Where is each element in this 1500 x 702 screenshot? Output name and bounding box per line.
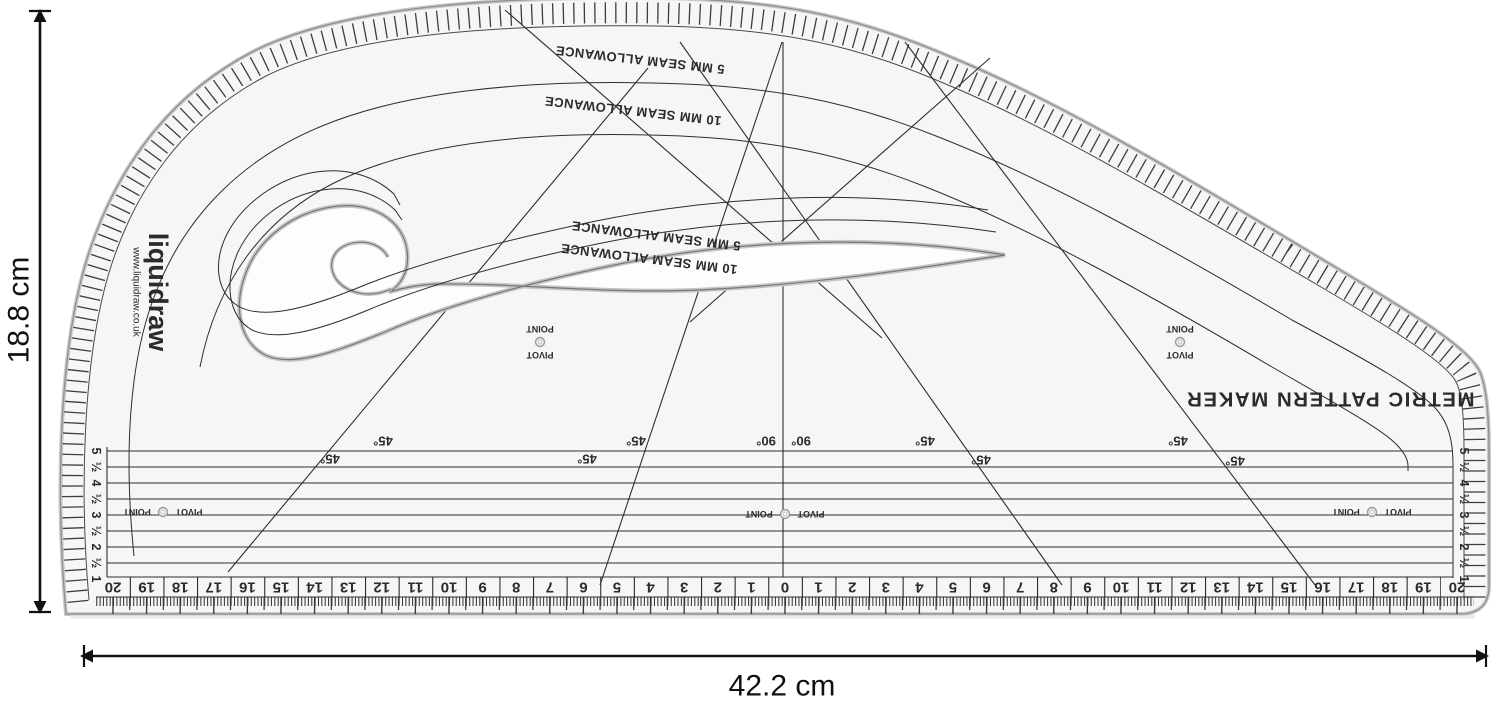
width-dimension [80, 645, 1489, 667]
side-scale-label-left: ½ [89, 462, 103, 472]
ruler-illustration: 18.8 cm 42.2 cm [0, 0, 1500, 702]
bottom-scale-number: 19 [1415, 579, 1432, 596]
angle-label-45: 45° [1225, 454, 1245, 469]
side-scale-label-right: 4 [1457, 480, 1471, 487]
bottom-scale-number: 20 [105, 579, 122, 596]
side-scale-label-right: ½ [1457, 462, 1471, 472]
bottom-scale-number: 16 [1314, 579, 1331, 596]
side-scale-label-right: ½ [1457, 494, 1471, 504]
pivot-hole-center [1178, 340, 1182, 344]
side-scale-label-left: 2 [89, 544, 103, 551]
pivot-hole-center [161, 510, 165, 514]
bottom-scale-number: 14 [306, 579, 323, 596]
pivot-point-label: POINT [526, 324, 554, 334]
bottom-scale-number: 9 [1083, 579, 1091, 596]
side-scale-label-left: ½ [89, 494, 103, 504]
bottom-scale-number: 13 [1213, 579, 1230, 596]
side-scale-label-left: ½ [89, 558, 103, 568]
angle-label-45: 45° [971, 453, 991, 468]
side-scale-label-right: ½ [1457, 558, 1471, 568]
width-dimension-label: 42.2 cm [729, 670, 836, 702]
bottom-scale-number: 3 [882, 579, 890, 596]
angle-label-45: 45° [1168, 434, 1188, 449]
pivot-label: PIVOT [797, 509, 825, 519]
bottom-scale-number: 7 [1016, 579, 1024, 596]
bottom-scale-number: 15 [273, 579, 290, 596]
bottom-scale-number: 10 [1113, 579, 1130, 596]
bottom-scale-number: 8 [1050, 579, 1058, 596]
pivot-label: PIVOT [1384, 507, 1412, 517]
bottom-scale-number: 12 [373, 579, 390, 596]
side-scale-label-right: 3 [1457, 512, 1471, 519]
side-scale-label-right: 5 [1457, 448, 1471, 455]
angle-label-45: 45° [915, 434, 935, 449]
side-scale-label-right: ½ [1457, 526, 1471, 536]
drop-shadow [70, 615, 1475, 619]
bottom-scale-number: 1 [747, 579, 755, 596]
pivot-label: PIVOT [1166, 350, 1194, 360]
height-dimension-label: 18.8 cm [3, 257, 36, 364]
bottom-scale-number: 6 [579, 579, 587, 596]
bottom-scale-number: 16 [239, 579, 256, 596]
angle-label-90: 90° [756, 434, 776, 449]
bottom-scale-number: 11 [1147, 579, 1163, 596]
pivot-point-label: POINT [1166, 324, 1194, 334]
side-scale-label-left: 3 [89, 512, 103, 519]
pivot-hole-center [1370, 510, 1374, 514]
angle-label-45: 45° [577, 452, 597, 467]
bottom-scale-number: 13 [340, 579, 357, 596]
side-scale-label-left: 4 [89, 480, 103, 487]
bottom-scale-number: 2 [714, 579, 722, 596]
bottom-scale-number: 14 [1246, 579, 1263, 596]
pivot-point-label: POINT [123, 507, 151, 517]
pivot-label: PIVOT [526, 350, 554, 360]
bottom-scale-number: 4 [915, 579, 924, 596]
bottom-scale-number: 15 [1281, 579, 1298, 596]
bottom-scale-number: 18 [172, 579, 189, 596]
product-photo: 18.8 cm 42.2 cm [0, 0, 1500, 702]
angle-label-45: 45° [626, 434, 646, 449]
angle-label-45: 45° [373, 434, 393, 449]
side-scale-label-right: 2 [1457, 544, 1471, 551]
side-scale-label-left: ½ [89, 526, 103, 536]
side-scale-label-left: 1 [89, 576, 103, 583]
bottom-scale-number: 2 [848, 579, 856, 596]
bottom-scale-number: 3 [680, 579, 688, 596]
bottom-scale-number: 5 [949, 579, 957, 596]
pivot-hole-center [538, 340, 542, 344]
bottom-scale-number: 7 [546, 579, 554, 596]
product-name-label: METRIC PATTERN MAKER [1186, 388, 1475, 411]
bottom-scale-number: 10 [441, 579, 458, 596]
bottom-scale-number: 8 [512, 579, 520, 596]
bottom-scale-number: 12 [1180, 579, 1197, 596]
bottom-scale-number: 19 [138, 579, 155, 596]
side-scale-label-left: 5 [89, 448, 103, 455]
bottom-scale-number: 6 [982, 579, 990, 596]
bottom-scale-number: 1 [814, 579, 822, 596]
bottom-scale-number: 5 [613, 579, 621, 596]
bottom-scale-number: 0 [781, 579, 789, 596]
side-scale-label-right: 1 [1457, 576, 1471, 583]
brand-website: www.liquidraw.co.uk [131, 246, 142, 337]
bottom-scale-number: 4 [646, 579, 655, 596]
angle-label-45: 45° [320, 452, 340, 467]
bottom-scale-number: 17 [205, 579, 222, 596]
bottom-scale-number: 9 [478, 579, 486, 596]
pivot-point-label: POINT [1332, 507, 1360, 517]
arrow-left-icon [80, 650, 93, 663]
pivot-point-label: POINT [745, 509, 773, 519]
bottom-scale-number: 18 [1381, 579, 1398, 596]
bottom-scale-number: 11 [407, 579, 423, 596]
angle-label-90: 90° [791, 434, 811, 449]
pivot-hole-center [783, 512, 787, 516]
brand-logo: liquidraw [143, 233, 173, 353]
pivot-label: PIVOT [175, 507, 203, 517]
bottom-scale-number: 17 [1348, 579, 1365, 596]
